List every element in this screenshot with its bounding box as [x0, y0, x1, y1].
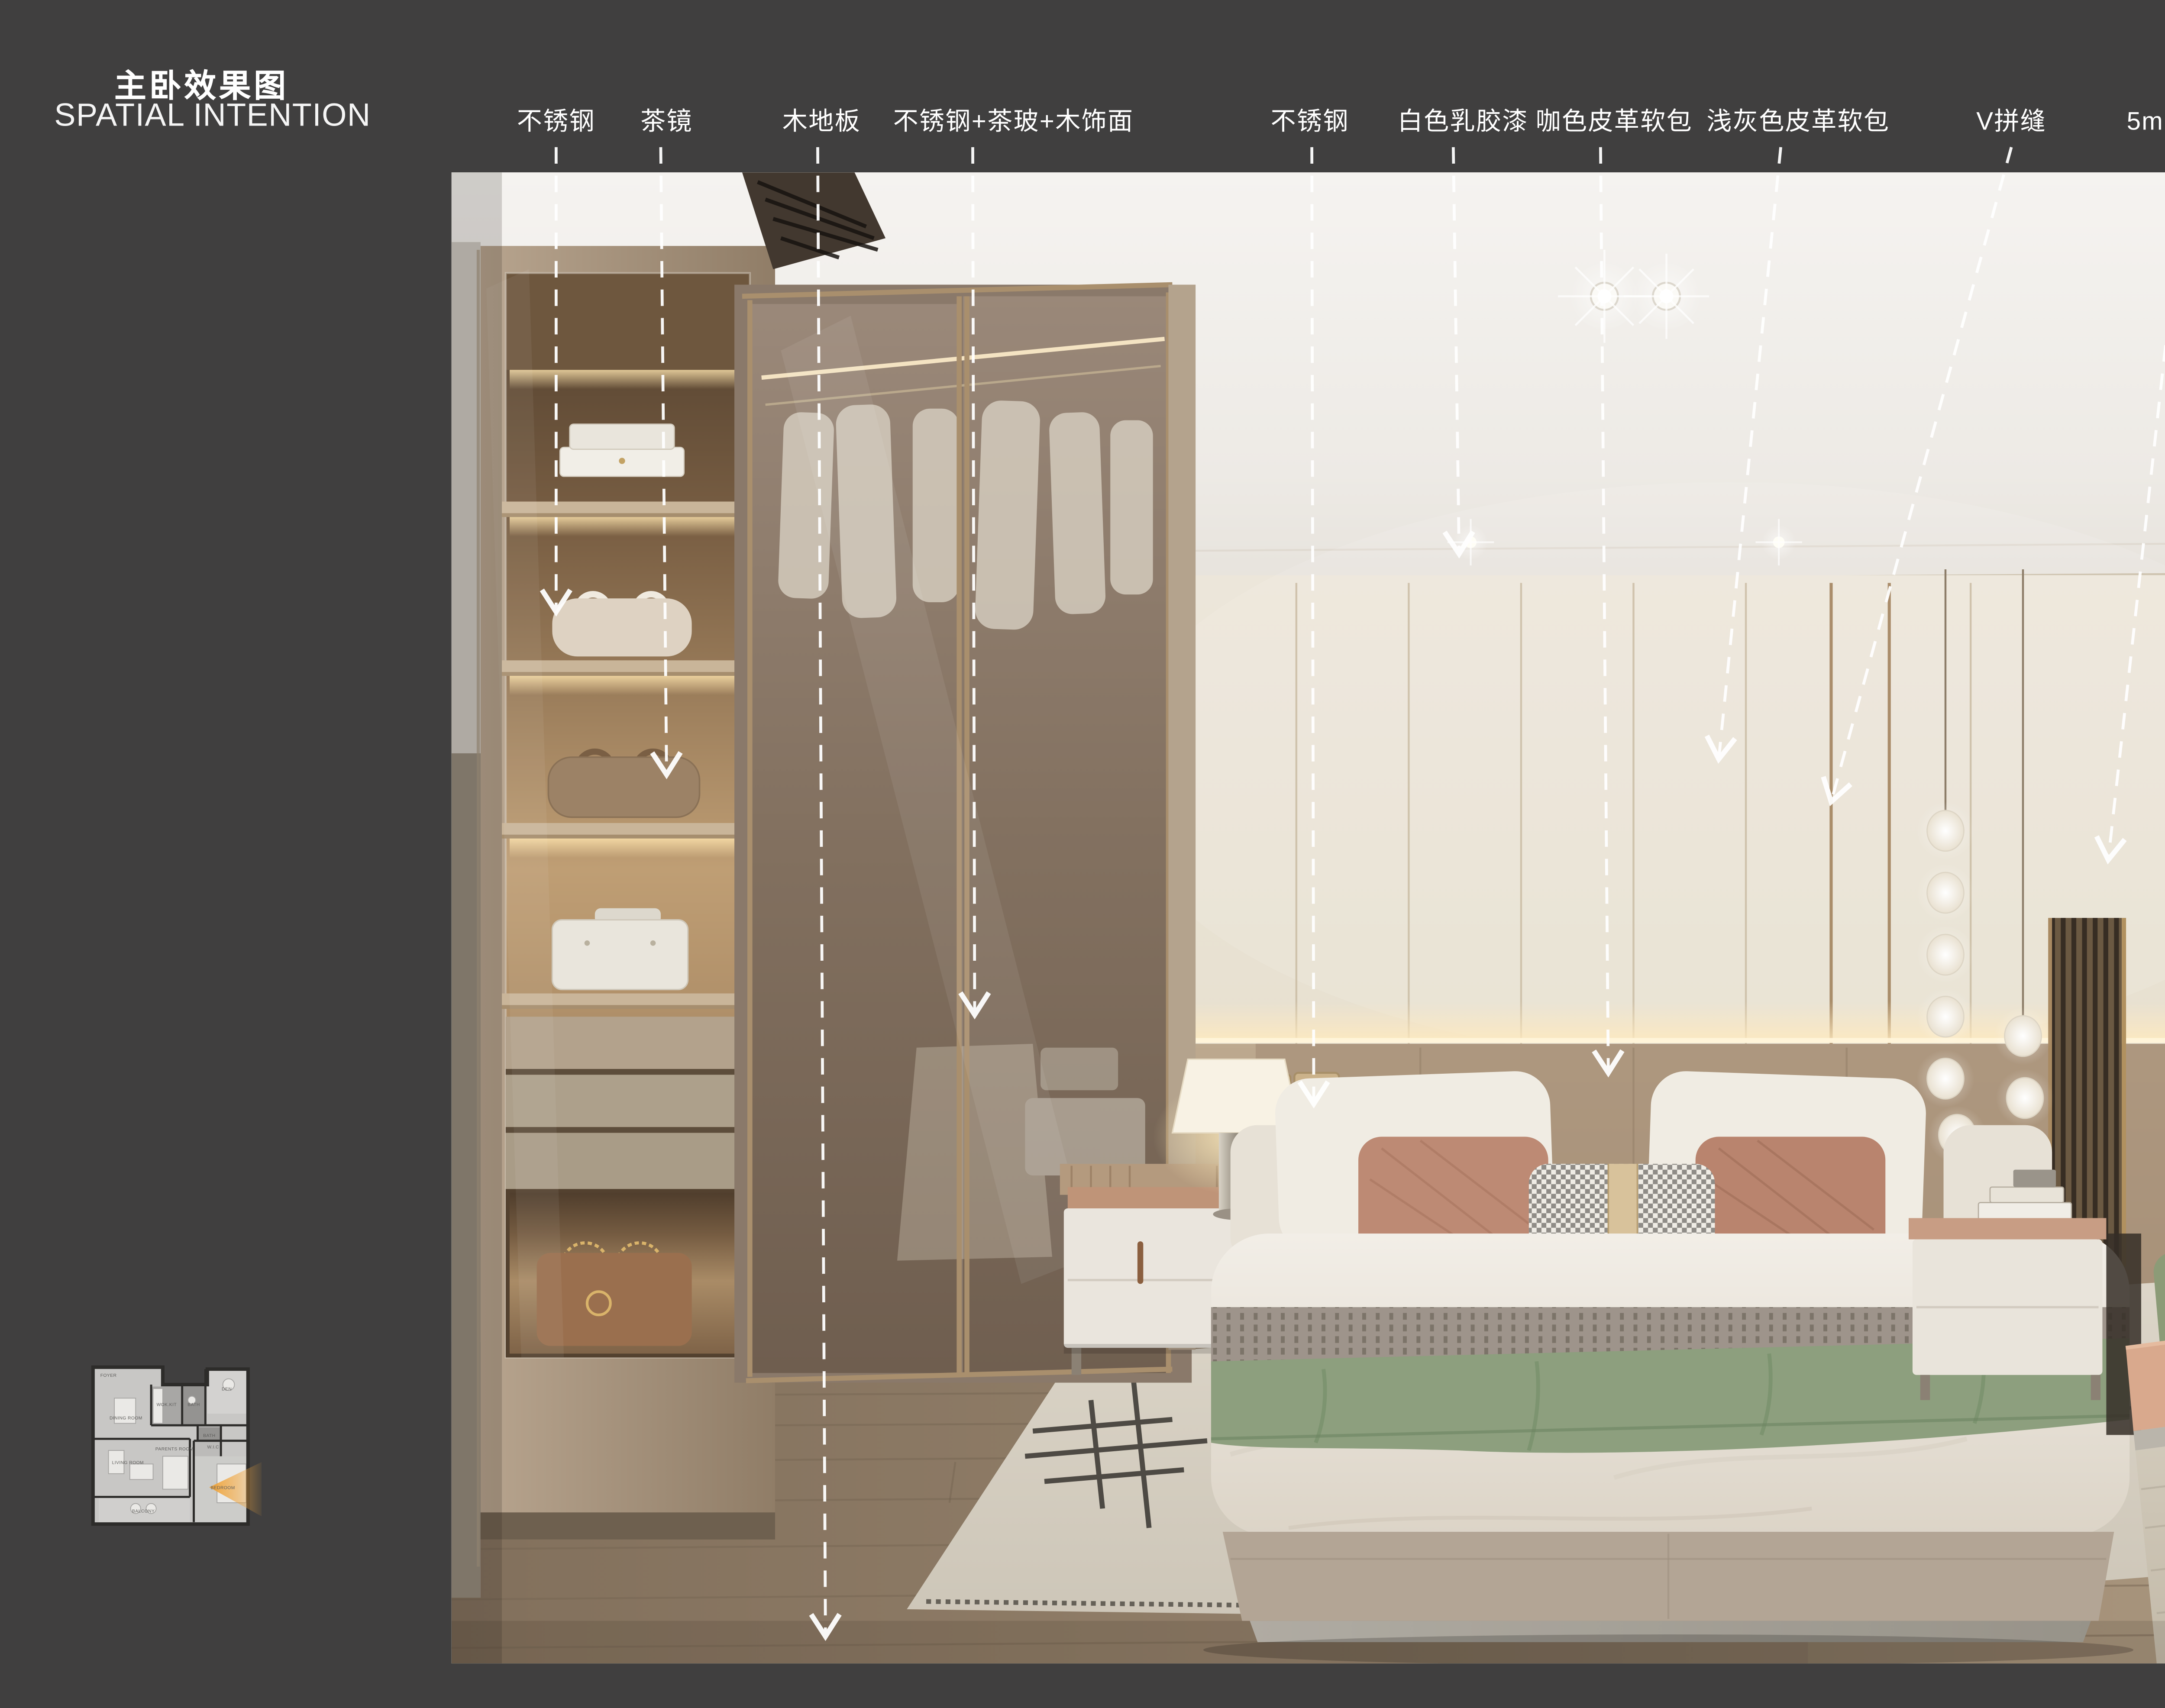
floorplan-room-label: BATH	[187, 1404, 200, 1408]
floorplan-room-label: BATH	[203, 1435, 215, 1439]
floorplan-room-label: WOK.KIT	[157, 1404, 177, 1408]
floorplan-room-label: W.I.C	[207, 1446, 219, 1450]
floorplan-room-label: BEDROOM	[210, 1487, 235, 1491]
leader-line-3	[818, 147, 825, 1637]
leader-line-8	[1719, 147, 1780, 759]
annotation-lines	[0, 0, 2165, 1708]
floorplan-room-label: BALCONY	[132, 1511, 155, 1514]
leader-line-10	[2108, 147, 2165, 860]
floor-plan: FOYERDINING ROOMWOK.KITBATHDENBATHLIVING…	[78, 1342, 297, 1555]
leader-line-4	[973, 147, 975, 1015]
leader-line-9	[1831, 147, 2011, 802]
leader-line-6	[1453, 147, 1459, 554]
floorplan-room-label: DEN	[222, 1388, 232, 1392]
floorplan-room-label: LIVING ROOM	[112, 1462, 144, 1466]
leader-line-5	[1312, 147, 1314, 1104]
floorplan-room-label: PARENTS ROOM	[155, 1449, 194, 1453]
floorplan-room-label: DINING ROOM	[110, 1417, 142, 1421]
floor-plan-labels: FOYERDINING ROOMWOK.KITBATHDENBATHLIVING…	[78, 1342, 297, 1555]
floorplan-room-label: FOYER	[100, 1375, 117, 1379]
leader-line-2	[661, 147, 666, 775]
presentation-slide: 主卧效果图 SPATIAL INTENTION	[0, 0, 2165, 1708]
leader-line-7	[1600, 147, 1608, 1073]
